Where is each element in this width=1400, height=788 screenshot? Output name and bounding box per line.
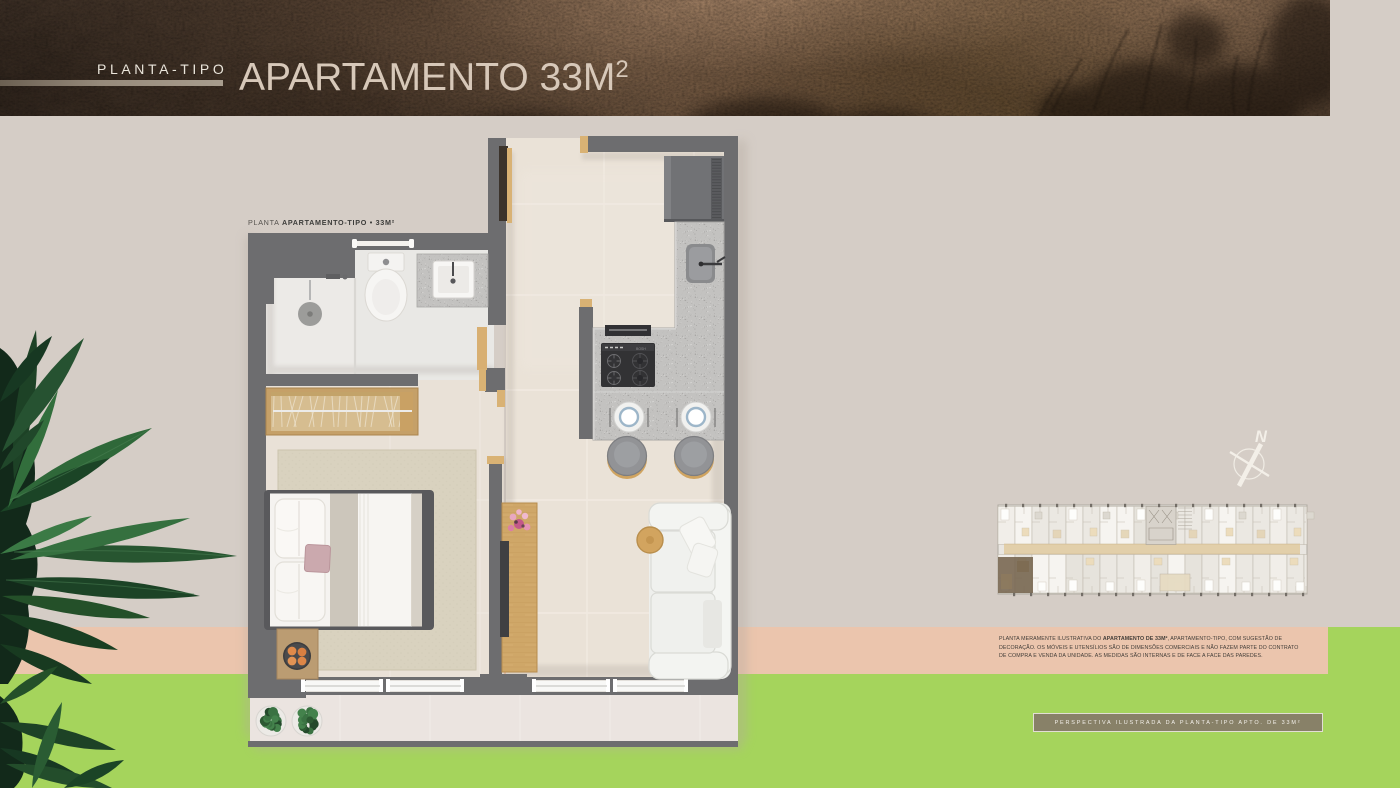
svg-text:N: N: [1255, 428, 1268, 446]
svg-text:BOSH: BOSH: [636, 347, 646, 351]
